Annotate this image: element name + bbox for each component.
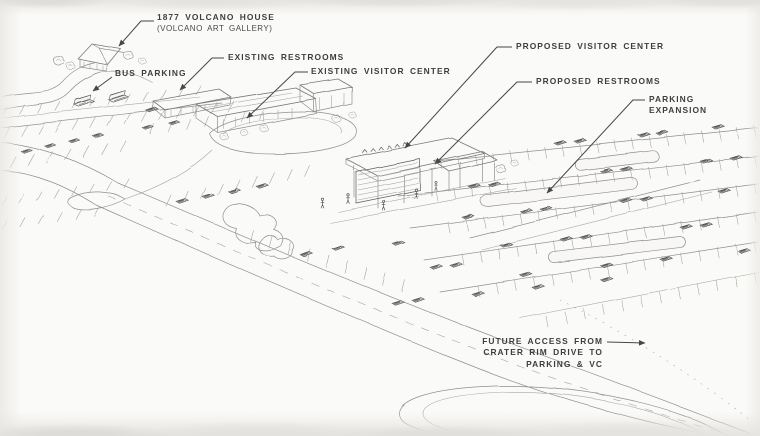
label-future-access: FUTURE ACCESS FROM CRATER RIM DRIVE TO P… <box>457 336 603 370</box>
future-access-line3: PARKING & VC <box>457 359 603 370</box>
landscape-islands <box>222 204 293 259</box>
bus-parking-area <box>2 86 405 292</box>
parked-cars <box>21 120 751 305</box>
label-proposed-restrooms: PROPOSED RESTROOMS <box>536 76 661 87</box>
label-proposed-visitor-center: PROPOSED VISITOR CENTER <box>516 41 664 52</box>
label-existing-restrooms: EXISTING RESTROOMS <box>228 52 344 63</box>
label-bus-parking: BUS PARKING <box>115 68 187 79</box>
label-volcano-house: 1877 VOLCANO HOUSE (VOLCANO ART GALLERY) <box>157 12 275 35</box>
leader-future-access <box>607 342 645 343</box>
future-access-line2: CRATER RIM DRIVE TO <box>457 347 603 358</box>
future-access-line1: FUTURE ACCESS FROM <box>457 336 603 347</box>
volcano-house-title: 1877 VOLCANO HOUSE <box>157 12 275 23</box>
volcano-house-subtitle: (VOLCANO ART GALLERY) <box>157 23 275 34</box>
site-plan-sketch: 1877 VOLCANO HOUSE (VOLCANO ART GALLERY)… <box>0 0 760 436</box>
existing-visitor-center-building <box>196 79 352 140</box>
leader-bus-parking <box>93 77 112 91</box>
leader-proposed-visitor-center <box>405 47 512 148</box>
leader-existing-visitor-center <box>247 72 308 118</box>
parking-expansion-line2: EXPANSION <box>649 105 707 116</box>
label-existing-visitor-center: EXISTING VISITOR CENTER <box>311 66 451 77</box>
label-parking-expansion: PARKING EXPANSION <box>649 94 707 117</box>
leader-existing-restrooms <box>180 58 224 90</box>
leader-volcano-house <box>119 21 154 46</box>
volcano-house-building <box>53 44 146 71</box>
parking-expansion-line1: PARKING <box>649 94 707 105</box>
